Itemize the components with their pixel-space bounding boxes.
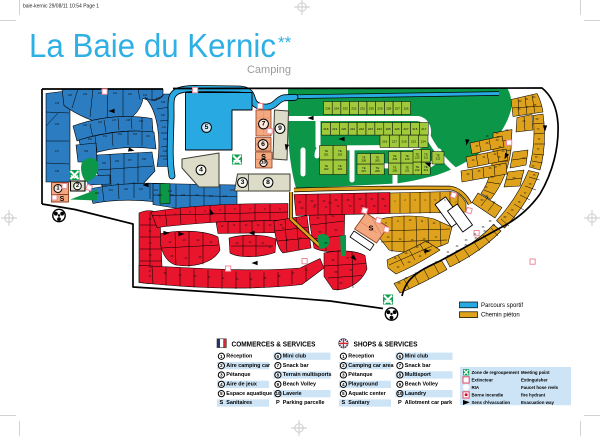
svg-text:10: 10 <box>275 391 280 396</box>
svg-text:163: 163 <box>139 188 144 191</box>
svg-text:160: 160 <box>95 192 100 195</box>
svg-text:fire hydrant: fire hydrant <box>521 392 546 397</box>
svg-text:130: 130 <box>98 92 103 95</box>
svg-text:154: 154 <box>146 135 151 138</box>
svg-text:RIA: RIA <box>472 385 480 390</box>
svg-text:138: 138 <box>55 170 60 173</box>
svg-text:236: 236 <box>325 107 330 111</box>
svg-text:141: 141 <box>162 126 167 129</box>
svg-text:212: 212 <box>415 168 420 172</box>
svg-text:Borne incendie: Borne incendie <box>472 392 504 397</box>
svg-text:Playground: Playground <box>348 382 378 388</box>
svg-text:214: 214 <box>421 140 426 144</box>
svg-text:132: 132 <box>128 93 133 96</box>
svg-text:223: 223 <box>368 127 373 131</box>
svg-text:Aire de jeux: Aire de jeux <box>226 382 257 388</box>
svg-text:226: 226 <box>404 107 409 111</box>
svg-text:Chemin piéton: Chemin piéton <box>481 313 520 319</box>
svg-text:**: ** <box>278 33 292 52</box>
svg-text:Camping car area: Camping car area <box>348 363 394 369</box>
svg-text:La Baie du Kernic: La Baie du Kernic <box>29 28 276 65</box>
svg-text:Parcours sportif: Parcours sportif <box>481 303 523 309</box>
svg-text:147: 147 <box>112 119 117 122</box>
svg-text:7: 7 <box>262 121 266 128</box>
svg-text:S: S <box>368 224 373 233</box>
svg-text:Réception: Réception <box>226 353 252 359</box>
svg-text:Parking parcelle: Parking parcelle <box>283 400 325 406</box>
svg-text:164: 164 <box>154 189 159 192</box>
svg-text:Extincteur: Extincteur <box>472 377 494 382</box>
svg-text:233: 233 <box>343 107 348 111</box>
svg-text:S: S <box>342 400 346 406</box>
svg-text:211: 211 <box>424 156 429 160</box>
svg-text:139: 139 <box>161 101 166 104</box>
svg-text:206: 206 <box>362 159 367 163</box>
svg-text:Zone de regroupement: Zone de regroupement <box>472 370 520 375</box>
svg-text:156: 156 <box>115 160 120 163</box>
svg-text:4: 4 <box>199 167 203 174</box>
svg-text:227: 227 <box>395 107 400 111</box>
svg-text:150: 150 <box>88 138 93 141</box>
svg-text:210: 210 <box>405 157 410 161</box>
svg-text:6: 6 <box>261 141 265 148</box>
svg-text:140: 140 <box>161 114 166 117</box>
svg-text:Sanitary: Sanitary <box>348 400 369 406</box>
svg-text:234: 234 <box>334 107 339 111</box>
svg-text:222: 222 <box>359 127 364 131</box>
svg-text:10: 10 <box>397 391 402 396</box>
svg-text:161: 161 <box>109 189 114 192</box>
svg-text:Beach Volley: Beach Volley <box>283 382 316 388</box>
svg-text:Pétanque: Pétanque <box>348 372 372 378</box>
svg-text:Mini club: Mini club <box>405 353 429 359</box>
svg-text:208: 208 <box>375 169 380 173</box>
svg-text:210: 210 <box>415 156 420 160</box>
svg-text:226: 226 <box>395 127 400 131</box>
svg-text:10: 10 <box>261 160 267 166</box>
svg-text:165: 165 <box>168 190 173 193</box>
svg-text:134: 134 <box>156 97 161 100</box>
svg-text:207: 207 <box>362 169 367 173</box>
svg-text:Aire camping car: Aire camping car <box>226 363 271 369</box>
svg-text:228: 228 <box>386 107 391 111</box>
svg-text:227: 227 <box>403 127 408 131</box>
svg-text:Sens d’évacuation: Sens d’évacuation <box>472 400 511 405</box>
svg-text:225: 225 <box>386 127 391 131</box>
svg-text:169: 169 <box>195 194 200 197</box>
svg-text:143: 143 <box>163 150 168 153</box>
svg-text:217: 217 <box>392 140 397 144</box>
svg-text:Mini club: Mini club <box>283 353 307 359</box>
svg-text:218: 218 <box>401 140 406 144</box>
svg-text:128: 128 <box>68 94 73 97</box>
svg-text:baie-kernic 29/08/11 10:54: baie-kernic 29/08/11 10:54 Page 1 <box>23 4 99 10</box>
svg-text:206: 206 <box>392 169 397 173</box>
svg-text:SHOPS & SERVICES: SHOPS & SERVICES <box>354 340 418 349</box>
svg-text:149: 149 <box>139 120 144 123</box>
svg-text:9: 9 <box>278 125 282 132</box>
svg-text:201: 201 <box>324 152 329 156</box>
svg-text:218: 218 <box>323 127 328 131</box>
svg-text:P: P <box>398 400 402 406</box>
svg-text:2: 2 <box>76 183 79 189</box>
svg-text:Espace aquatique: Espace aquatique <box>226 391 272 397</box>
svg-text:146: 146 <box>98 121 103 124</box>
svg-text:P: P <box>276 400 280 406</box>
svg-text:213: 213 <box>411 140 416 144</box>
svg-text:Laverie: Laverie <box>283 391 302 397</box>
svg-text:209: 209 <box>392 157 397 161</box>
svg-text:8: 8 <box>266 179 270 186</box>
svg-text:Aquatic center: Aquatic center <box>348 391 386 397</box>
svg-text:231: 231 <box>360 107 365 111</box>
svg-text:212: 212 <box>436 157 441 161</box>
svg-text:204: 204 <box>338 167 343 171</box>
svg-text:Beach Volley: Beach Volley <box>405 382 438 388</box>
svg-text:5: 5 <box>205 124 209 131</box>
svg-text:153: 153 <box>133 133 138 136</box>
svg-text:148: 148 <box>126 119 131 122</box>
svg-text:152: 152 <box>118 133 123 136</box>
svg-text:159: 159 <box>84 150 89 153</box>
svg-text:131: 131 <box>113 92 118 95</box>
svg-text:202: 202 <box>324 167 329 171</box>
svg-text:221: 221 <box>350 127 355 131</box>
svg-text:162: 162 <box>124 188 129 191</box>
svg-text:144: 144 <box>163 158 168 161</box>
svg-text:137: 137 <box>55 150 60 153</box>
svg-text:203: 203 <box>338 152 343 156</box>
svg-text:224: 224 <box>377 127 382 131</box>
svg-text:136: 136 <box>55 123 60 126</box>
svg-text:Camping: Camping <box>247 64 291 76</box>
svg-text:133: 133 <box>143 94 148 97</box>
svg-text:216: 216 <box>382 140 387 144</box>
svg-text:135: 135 <box>55 102 60 105</box>
svg-text:COMMERCES & SERVICES: COMMERCES & SERVICES <box>232 340 316 349</box>
svg-text:Snack bar: Snack bar <box>405 363 432 369</box>
svg-text:Laundry: Laundry <box>405 391 426 397</box>
svg-text:232: 232 <box>351 107 356 111</box>
svg-text:Evacuation way: Evacuation way <box>521 400 555 405</box>
svg-text:129: 129 <box>83 93 88 96</box>
svg-text:S: S <box>60 196 65 203</box>
svg-text:168: 168 <box>181 194 186 197</box>
svg-text:Multisport: Multisport <box>405 372 431 378</box>
svg-text:Allotment car park: Allotment car park <box>405 400 452 406</box>
svg-text:220: 220 <box>341 127 346 131</box>
svg-text:229: 229 <box>377 107 382 111</box>
svg-text:158: 158 <box>142 158 147 161</box>
svg-text:167: 167 <box>170 194 175 197</box>
svg-text:145: 145 <box>83 124 88 127</box>
svg-text:155: 155 <box>102 162 107 165</box>
svg-text:Reception: Reception <box>348 353 374 359</box>
svg-text:230: 230 <box>369 107 374 111</box>
svg-text:151: 151 <box>103 135 108 138</box>
svg-text:Snack bar: Snack bar <box>283 363 310 369</box>
svg-text:216: 216 <box>412 127 417 131</box>
svg-text:Terrain multisports: Terrain multisports <box>283 372 332 378</box>
svg-text:142: 142 <box>163 138 168 141</box>
svg-text:157: 157 <box>128 159 133 162</box>
svg-text:3: 3 <box>241 179 245 186</box>
svg-text:Meeting point: Meeting point <box>521 370 550 375</box>
svg-text:Sanitaires: Sanitaires <box>226 400 252 406</box>
svg-text:S: S <box>220 400 224 406</box>
svg-text:171: 171 <box>223 195 228 198</box>
svg-text:211: 211 <box>405 169 410 173</box>
svg-text:170: 170 <box>209 195 214 198</box>
svg-text:205: 205 <box>375 159 380 163</box>
svg-text:172: 172 <box>230 189 235 192</box>
svg-text:219: 219 <box>332 127 337 131</box>
svg-text:213: 213 <box>424 168 429 172</box>
svg-text:Pétanque: Pétanque <box>226 372 250 378</box>
svg-text:217: 217 <box>421 127 426 131</box>
svg-text:Faucet hose reels: Faucet hose reels <box>521 385 559 390</box>
svg-text:166: 166 <box>158 194 163 197</box>
svg-text:Extinguisher: Extinguisher <box>521 377 548 382</box>
